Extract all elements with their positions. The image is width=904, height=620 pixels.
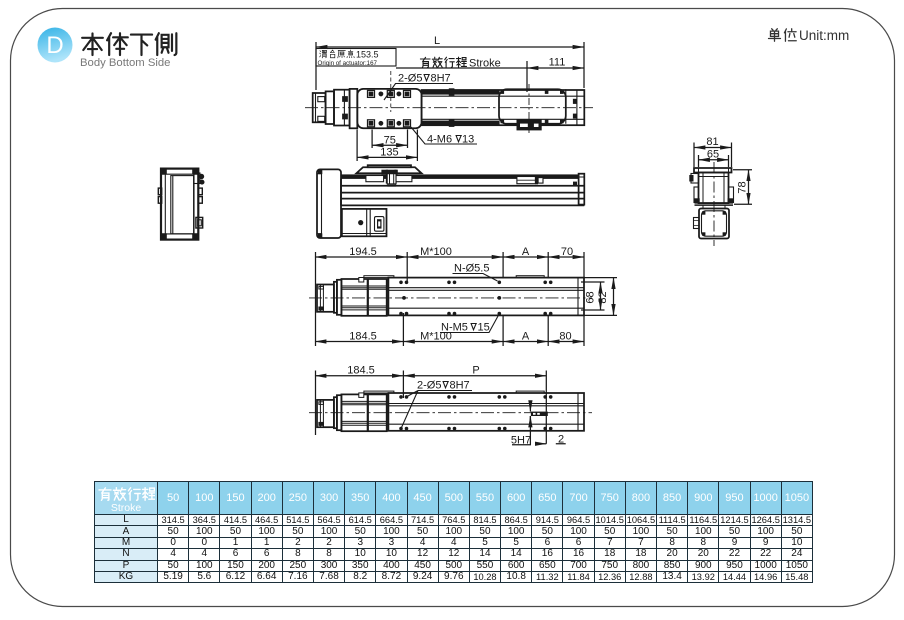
svg-text:4-M6: 4-M6 [427, 134, 452, 146]
svg-text:8H7: 8H7 [450, 380, 470, 392]
svg-text:8H7: 8H7 [431, 73, 451, 85]
svg-text:81: 81 [706, 136, 718, 148]
svg-text:P: P [472, 365, 479, 377]
svg-text:13: 13 [462, 134, 474, 146]
svg-text:A: A [522, 246, 530, 258]
svg-text:Origin of actuator:167: Origin of actuator:167 [318, 60, 378, 67]
svg-text:2-Ø5: 2-Ø5 [398, 73, 422, 85]
svg-text:184.5: 184.5 [347, 365, 375, 377]
svg-text:M*100: M*100 [420, 246, 452, 258]
svg-text:80: 80 [559, 330, 571, 342]
svg-text:5H7: 5H7 [511, 435, 531, 447]
svg-text:Stroke: Stroke [469, 58, 501, 70]
svg-text:15: 15 [478, 322, 490, 334]
svg-text:A: A [522, 330, 530, 342]
svg-text:194.5: 194.5 [349, 246, 377, 258]
svg-text:135: 135 [380, 146, 398, 158]
svg-text:75: 75 [384, 134, 396, 146]
svg-text:111: 111 [549, 57, 566, 69]
svg-text:82: 82 [597, 291, 609, 303]
svg-text:184.5: 184.5 [349, 330, 377, 342]
svg-text:D: D [46, 32, 63, 59]
svg-text:153.5: 153.5 [356, 50, 379, 60]
svg-text:Body Bottom Side: Body Bottom Side [80, 57, 170, 69]
svg-text:L: L [434, 35, 440, 47]
svg-text:2-Ø5: 2-Ø5 [417, 380, 441, 392]
svg-text:Unit:mm: Unit:mm [799, 28, 849, 43]
svg-text:65: 65 [707, 149, 719, 161]
svg-text:2: 2 [558, 434, 564, 446]
svg-text:68: 68 [585, 291, 597, 303]
svg-text:N-Ø5.5: N-Ø5.5 [454, 263, 489, 275]
svg-text:70: 70 [561, 246, 573, 258]
svg-text:78: 78 [737, 181, 749, 193]
svg-text:M*100: M*100 [420, 330, 452, 342]
